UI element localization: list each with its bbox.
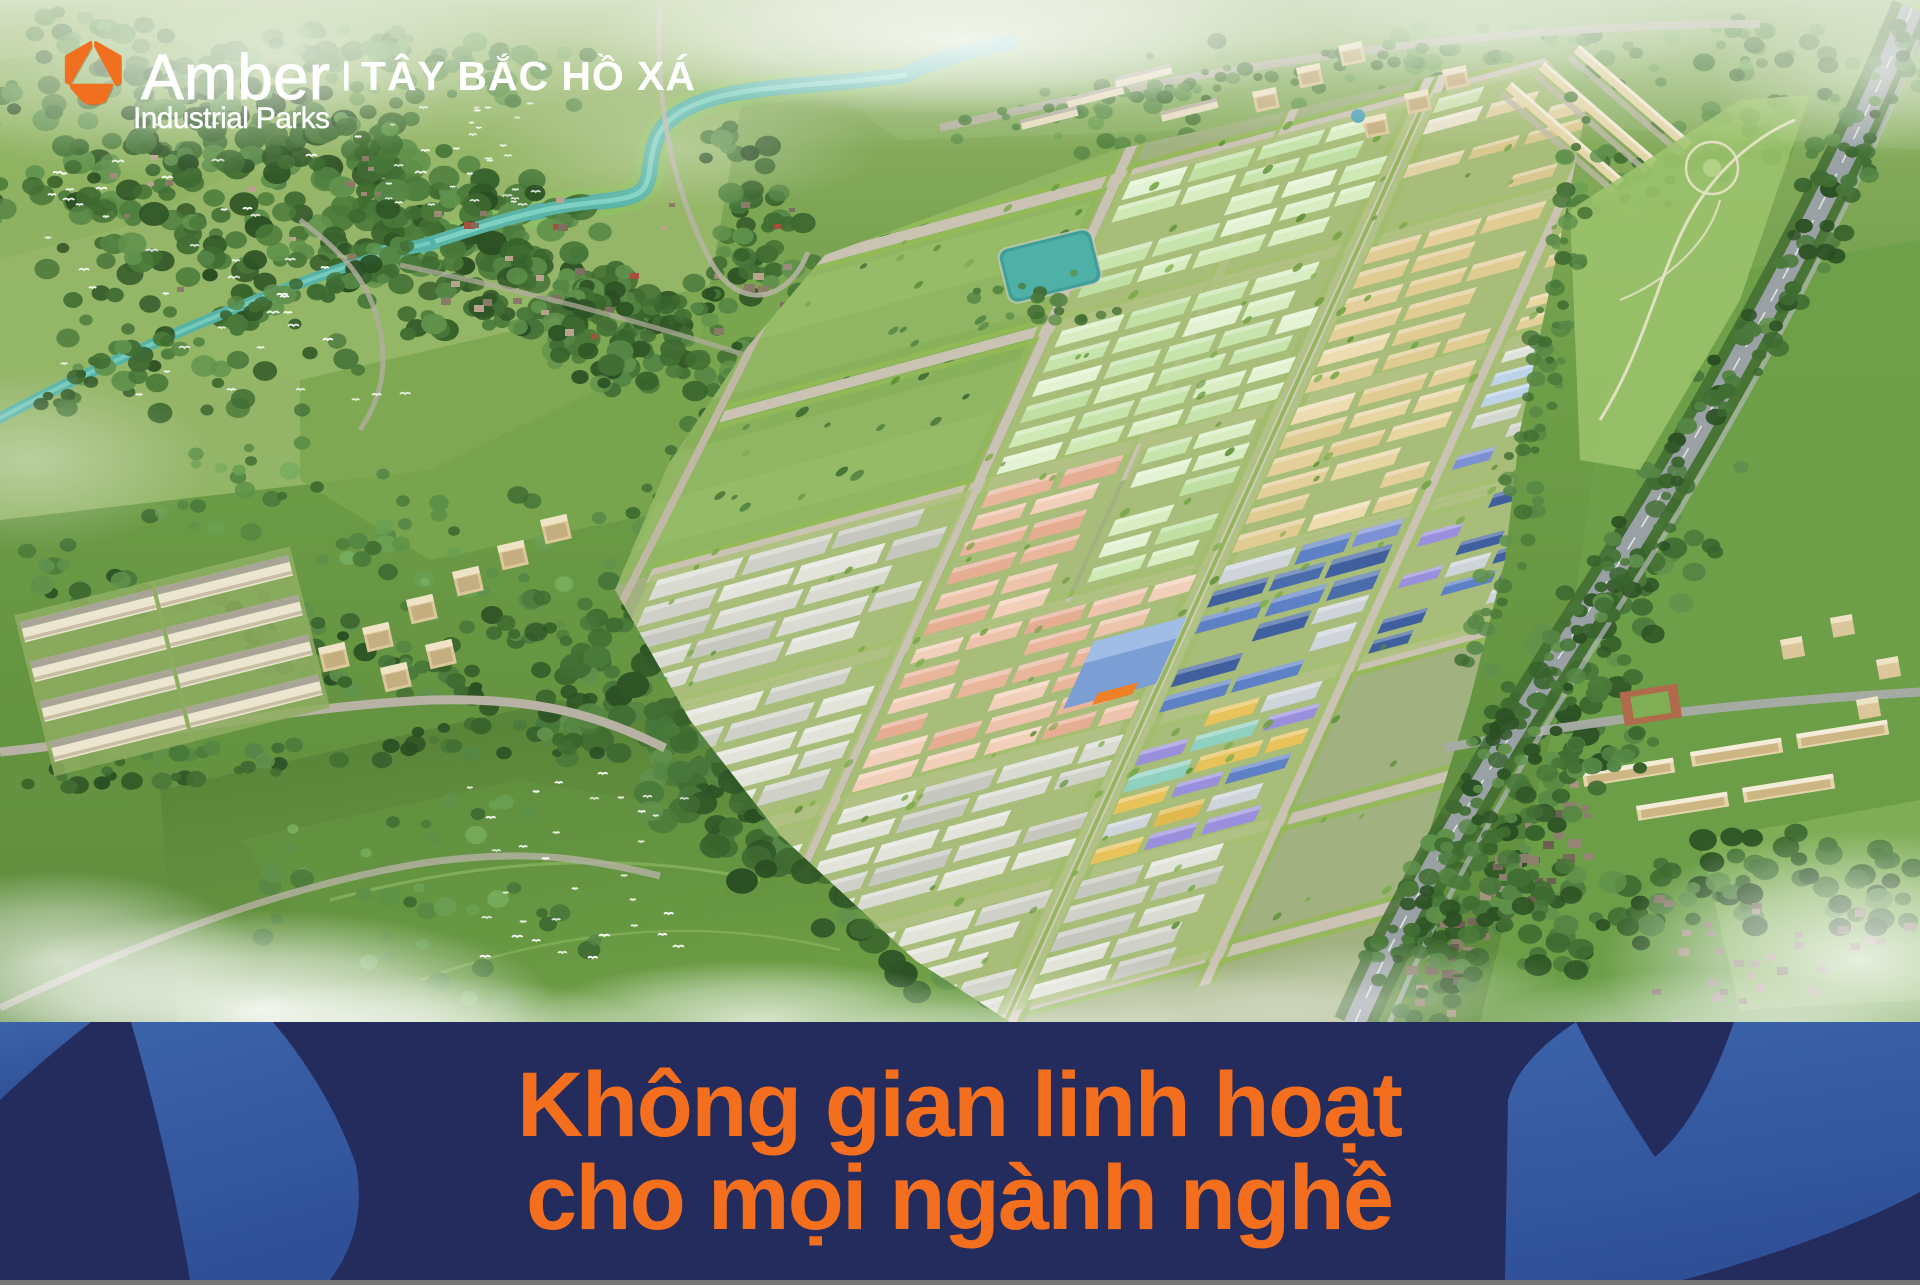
svg-text:Industrial Parks: Industrial Parks [133,102,330,135]
svg-text:cho mọi ngành nghề: cho mọi ngành nghề [526,1147,1394,1249]
svg-text:TÂY BẮC HỒ XÁ: TÂY BẮC HỒ XÁ [361,53,695,99]
svg-text:Không gian linh hoạt: Không gian linh hoạt [517,1054,1403,1156]
